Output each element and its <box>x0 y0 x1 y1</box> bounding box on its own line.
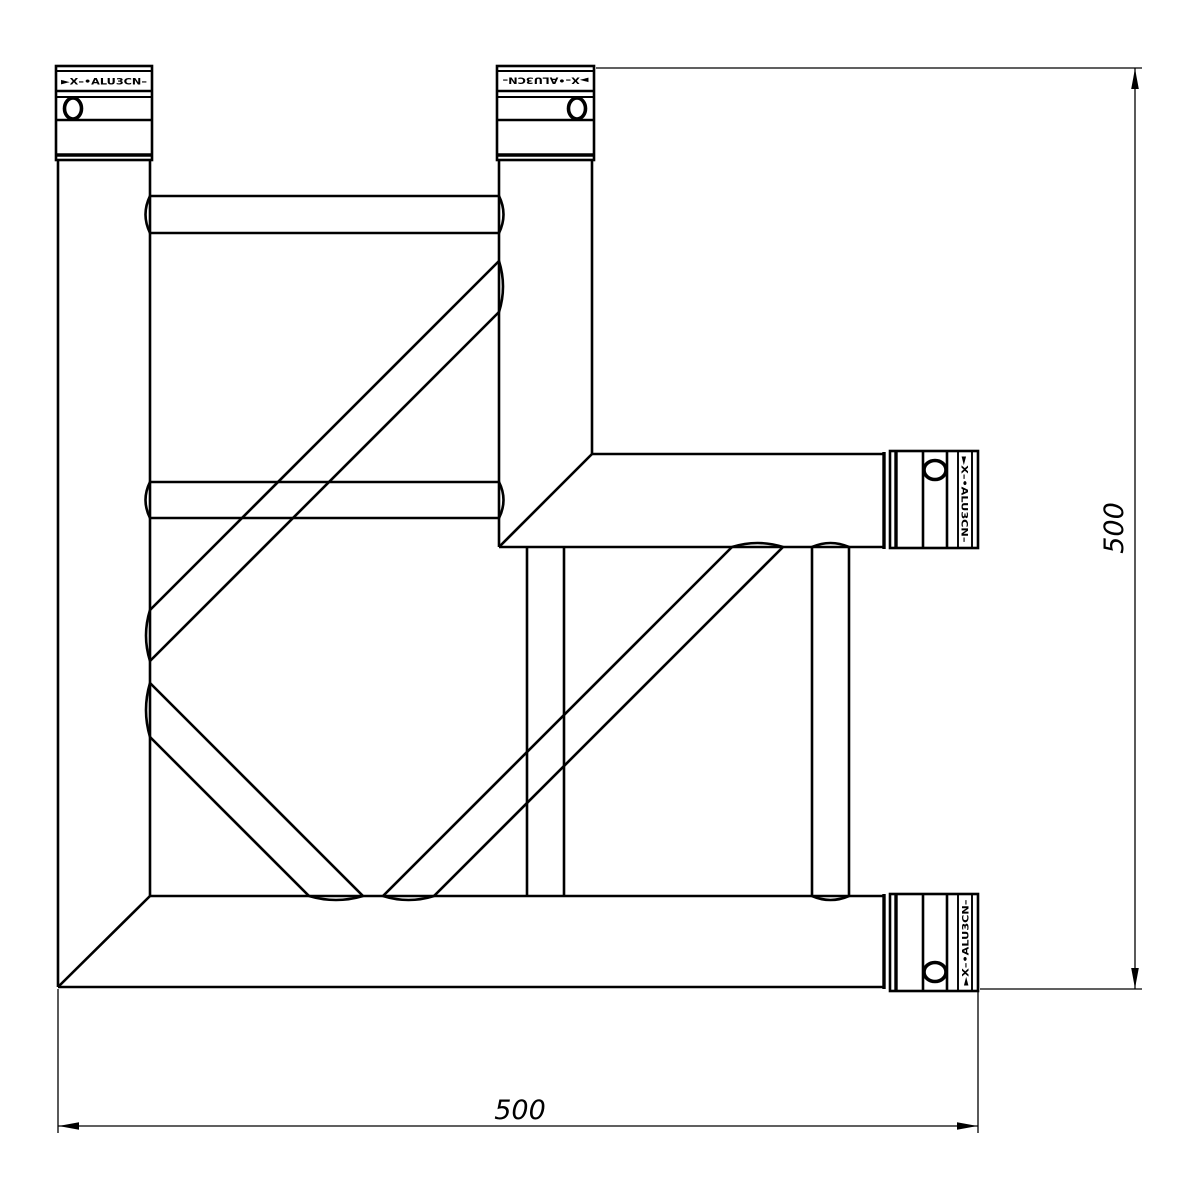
brace-diagonal-up <box>146 261 503 661</box>
truss-corner-drawing: ►X–•ALU3CN– ►X–•ALU3CN– ►X–•ALU3CN– ►X–•… <box>0 0 1200 1200</box>
connector-bottom-right: ►X–•ALU3CN– <box>890 893 978 992</box>
right-chord <box>499 160 592 547</box>
arrowhead-down <box>1131 968 1139 989</box>
brace-horizontal-top <box>146 196 504 233</box>
left-chord <box>58 160 150 987</box>
brand-marking: ►X–•ALU3CN– <box>502 75 589 85</box>
connector-top-left: ►X–•ALU3CN– <box>55 66 153 160</box>
bottom-chord <box>58 894 884 989</box>
dimension-value-horizontal: 500 <box>494 1095 546 1126</box>
drawing-canvas: ►X–•ALU3CN– ►X–•ALU3CN– ►X–•ALU3CN– ►X–•… <box>0 0 1200 1200</box>
brace-diagonal-right-bay <box>383 543 783 900</box>
brace-vertical-right <box>812 543 849 900</box>
corner-miter-line <box>499 454 592 547</box>
pin-hole <box>924 461 946 480</box>
pin-hole <box>65 98 82 119</box>
brace-diagonal-down <box>146 683 363 900</box>
dimension-horizontal: 500 <box>58 989 978 1133</box>
arrowhead-right <box>957 1122 978 1130</box>
connector-right-middle: ►X–•ALU3CN– <box>890 450 978 549</box>
dimension-value-vertical: 500 <box>1099 502 1130 554</box>
arrowhead-up <box>1131 69 1139 90</box>
pin-hole <box>924 963 946 982</box>
brand-marking: ►X–•ALU3CN– <box>61 78 148 88</box>
bottom-left-miter-line <box>58 896 150 987</box>
brand-marking: ►X–•ALU3CN– <box>962 899 972 986</box>
brand-marking: ►X–•ALU3CN– <box>959 457 969 544</box>
connector-top-right: ►X–•ALU3CN– <box>496 66 595 160</box>
pin-hole <box>569 98 586 119</box>
corner-arm <box>499 452 884 549</box>
arrowhead-left <box>59 1122 80 1130</box>
dimension-vertical: 500 <box>596 68 1142 989</box>
